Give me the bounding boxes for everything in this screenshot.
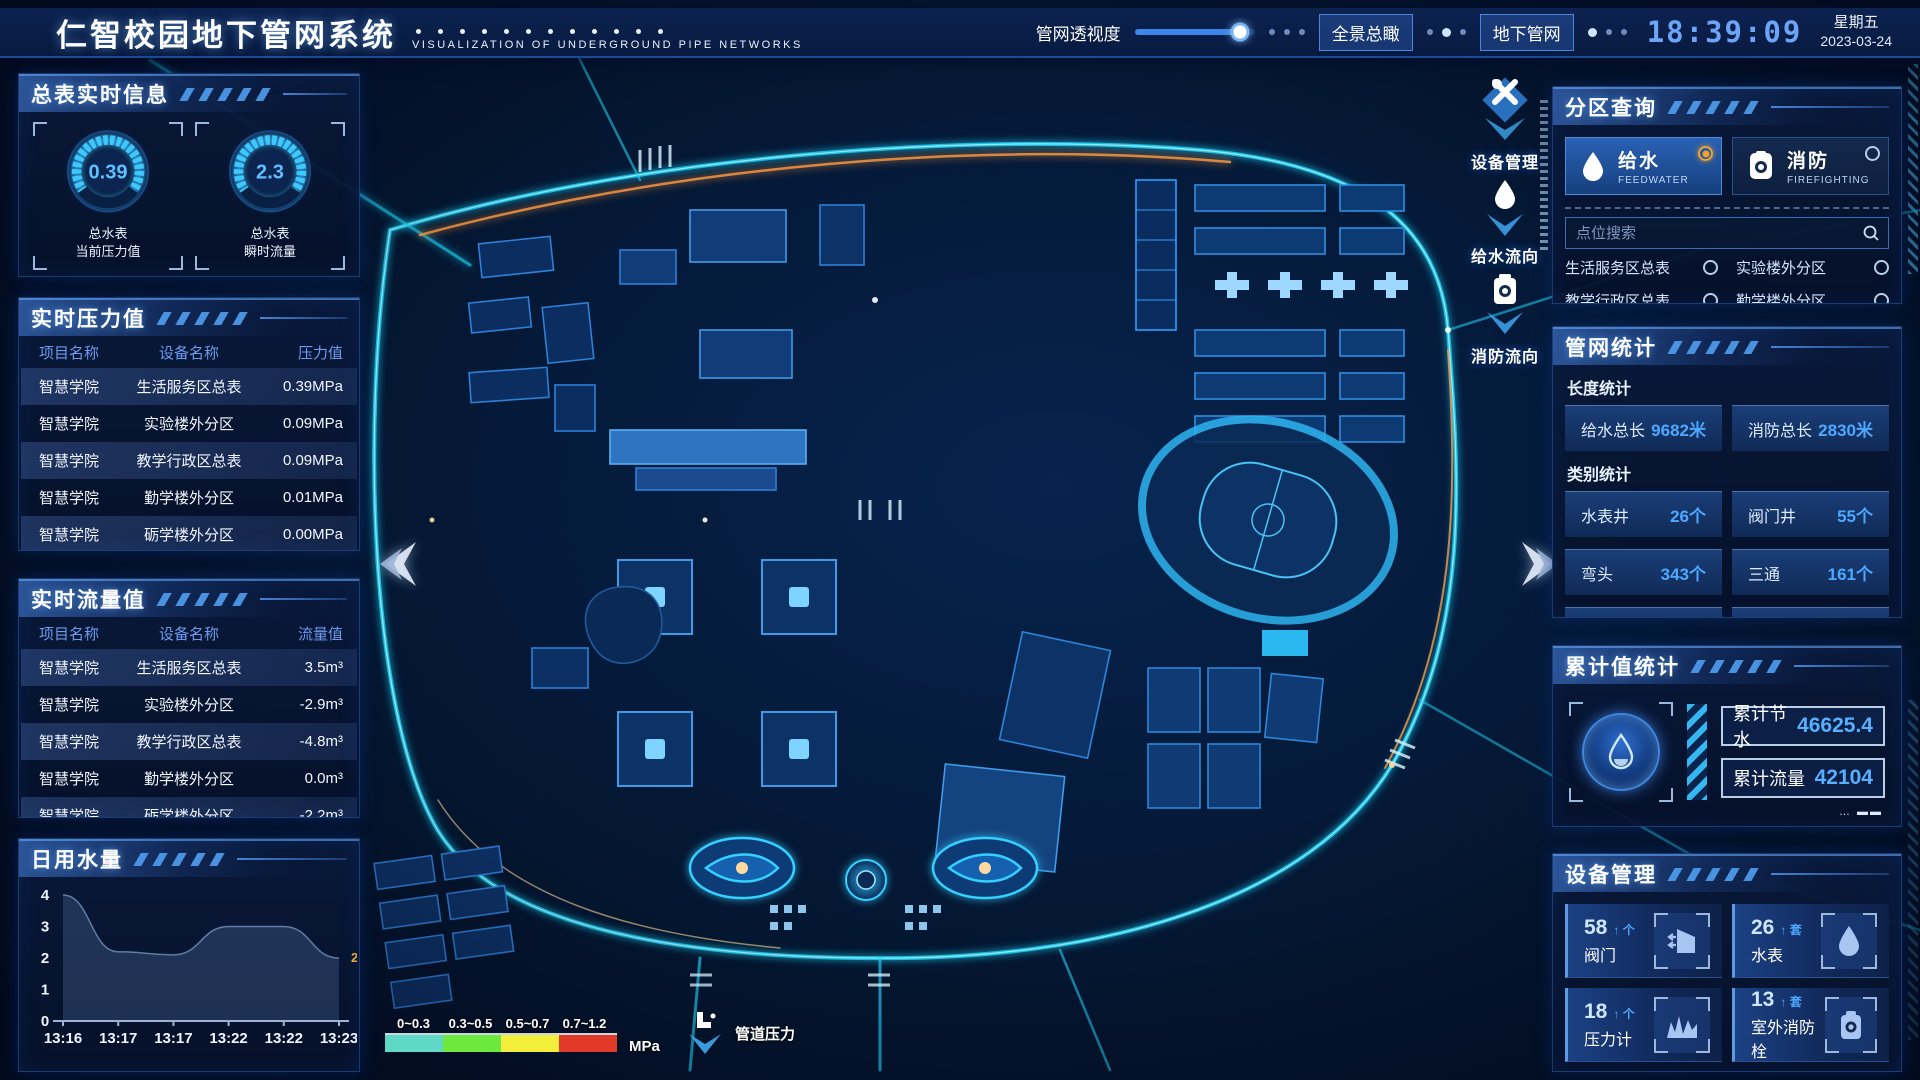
cumulative-saved-row: 累计节水46625.4 — [1721, 706, 1885, 746]
pipe-pressure-label: 管道压力 — [735, 1023, 795, 1044]
table-row[interactable]: 智慧学院生活服务区总表3.5m³ — [21, 649, 357, 686]
up-arrow-icon: ↑ 个 — [1613, 1007, 1634, 1021]
pressure-table-header: 项目名称 设备名称 压力值 — [21, 336, 357, 368]
svg-text:3: 3 — [41, 919, 49, 936]
tab-radio[interactable] — [1865, 146, 1880, 161]
title-line-decoration — [1771, 106, 1889, 108]
item-radio[interactable] — [1874, 293, 1889, 304]
title-line-decoration — [260, 598, 347, 600]
flow-table: 项目名称 设备名称 流量值 智慧学院生活服务区总表3.5m³ 智慧学院实验楼外分… — [19, 617, 359, 818]
transparency-slider-fill — [1135, 29, 1241, 35]
table-row[interactable]: 智慧学院教学行政区总表0.09MPa — [21, 442, 357, 479]
gauge-pressure-card: 0.39 总水表 当前压力值 — [33, 122, 183, 270]
svg-text:0: 0 — [41, 1013, 49, 1030]
pipe-statistics-panel: 管网统计 长度统计 给水总长9682米 消防总长2830米 类别统计 水表井26… — [1552, 326, 1902, 618]
dots-decoration — [1427, 28, 1466, 37]
slashes-decoration — [1667, 341, 1761, 354]
tab-firefighting[interactable]: 消防FIREFIGHTING — [1732, 137, 1889, 195]
search-icon[interactable] — [1862, 224, 1880, 242]
realtime-pressure-panel: 实时压力值 项目名称 设备名称 压力值 智慧学院生活服务区总表0.39MPa 智… — [18, 297, 360, 551]
list-item[interactable]: 勤学楼外分区 — [1736, 290, 1889, 304]
pressure-table: 项目名称 设备名称 压力值 智慧学院生活服务区总表0.39MPa 智慧学院实验楼… — [19, 336, 359, 551]
stat-chip-fire-length: 消防总长2830米 — [1732, 405, 1889, 451]
svg-text:13:17: 13:17 — [99, 1030, 137, 1047]
stat-chip-feedwater-length: 给水总长9682米 — [1565, 405, 1722, 451]
stat-chip-meter-well: 水表井26个 — [1565, 491, 1722, 537]
pipe-pressure-icon — [685, 1010, 725, 1056]
app-subtitle: VISUALIZATION OF UNDERGROUND PIPE NETWOR… — [412, 39, 803, 51]
fire-hydrant-icon — [1469, 272, 1541, 338]
up-arrow-icon: ↑ 套 — [1780, 923, 1801, 937]
title-line-decoration — [1771, 346, 1889, 348]
map-tool-fire-flow[interactable]: 消防流向 — [1463, 272, 1547, 367]
svg-text:13:22: 13:22 — [209, 1030, 247, 1047]
title-line-decoration — [237, 858, 347, 860]
slashes-decoration — [1667, 868, 1761, 881]
map-pan-left-arrow[interactable] — [378, 540, 418, 588]
svg-text:0.39: 0.39 — [88, 161, 127, 183]
gauge-flow-card: 2.3 总水表 瞬时流量 — [195, 122, 345, 270]
legend-color-bar — [385, 1035, 617, 1052]
panel-title: 总表实时信息 — [31, 79, 169, 109]
fire-hydrant-icon — [1825, 997, 1877, 1053]
water-drop-icon — [1582, 713, 1660, 791]
cumulative-stats-panel: 累计值统计 累计节水46625.4 累计流量42104 … ▬▬ — [1552, 645, 1902, 827]
panel-title: 累计值统计 — [1565, 651, 1680, 681]
svg-text:13:23: 13:23 — [320, 1030, 357, 1047]
point-search-box[interactable] — [1565, 217, 1889, 249]
pipe-pressure-legend: 0~0.30.3~0.5 0.5~0.70.7~1.2 MPa 管道压力 — [385, 1016, 785, 1052]
table-row[interactable]: 智慧学院生活服务区总表0.39MPa — [21, 368, 357, 405]
dashed-divider — [1565, 207, 1889, 209]
svg-text:13:22: 13:22 — [265, 1030, 303, 1047]
map-tool-feedwater-flow[interactable]: 给水流向 — [1463, 178, 1547, 267]
search-input[interactable] — [1576, 225, 1862, 242]
tab-radio-selected[interactable] — [1698, 146, 1713, 161]
fire-hydrant-icon — [1747, 150, 1775, 182]
water-drop-icon — [1580, 150, 1606, 182]
panel-title: 实时压力值 — [31, 303, 146, 333]
device-card-water-meters[interactable]: 26↑ 套 水表 — [1732, 904, 1889, 978]
table-row[interactable]: 智慧学院实验楼外分区0.09MPa — [21, 405, 357, 442]
cumulative-flow-row: 累计流量42104 — [1721, 758, 1885, 798]
header-bar: 仁智校园地下管网系统 VISUALIZATION OF UNDERGROUND … — [0, 8, 1920, 58]
slashes-decoration — [179, 88, 273, 101]
slashes-decoration — [133, 853, 227, 866]
zone-list: 生活服务区总表 实验楼外分区 教学行政区总表 勤学楼外分区 砺学楼外分区 宿舍区… — [1553, 249, 1901, 304]
table-row[interactable]: 智慧学院砺学楼外分区0.00MPa — [21, 516, 357, 551]
table-row[interactable]: 智慧学院勤学楼外分区0.01MPa — [21, 479, 357, 516]
dots-decoration — [1269, 29, 1305, 35]
title-line-decoration — [1794, 665, 1889, 667]
valve-icon — [1654, 913, 1710, 969]
transparency-slider[interactable] — [1135, 29, 1255, 35]
panel-title: 设备管理 — [1565, 859, 1657, 889]
slashes-decoration — [156, 312, 250, 325]
tab-feedwater[interactable]: 给水FEEDWATER — [1565, 137, 1722, 195]
slashes-decoration — [156, 593, 250, 606]
svg-text:2.3: 2.3 — [256, 161, 284, 183]
table-row[interactable]: 智慧学院砺学楼外分区-2.2m³ — [21, 797, 357, 818]
svg-text:1: 1 — [41, 982, 49, 999]
stat-chip-elbow: 弯头343个 — [1565, 549, 1722, 595]
legend-unit: MPa — [629, 1038, 660, 1055]
weekday: 星期五 — [1820, 14, 1892, 33]
daily-water-chart: 0123413:1613:1713:1713:2213:2213:232 — [21, 881, 357, 1063]
hatch-bar-decoration — [1687, 704, 1707, 800]
date-block: 星期五 2023-03-24 — [1820, 14, 1892, 50]
stat-chip-tee: 三通161个 — [1732, 549, 1889, 595]
list-item[interactable]: 实验楼外分区 — [1736, 257, 1889, 278]
underground-pipes-button[interactable]: 地下管网 — [1480, 14, 1574, 51]
gauge-label: 总水表 瞬时流量 — [195, 225, 345, 260]
realtime-flow-panel: 实时流量值 项目名称 设备名称 流量值 智慧学院生活服务区总表3.5m³ 智慧学… — [18, 578, 360, 818]
table-row[interactable]: 智慧学院实验楼外分区-2.9m³ — [21, 686, 357, 723]
up-arrow-icon: ↑ 套 — [1780, 995, 1801, 1009]
svg-text:2: 2 — [41, 950, 49, 967]
table-row[interactable]: 智慧学院教学行政区总表-4.8m³ — [21, 723, 357, 760]
dashes-decoration: … ▬▬ — [1553, 802, 1901, 818]
slashes-decoration — [1667, 101, 1761, 114]
panel-title: 分区查询 — [1565, 92, 1657, 122]
meter-realtime-panel: 总表实时信息 0.39 总水表 当前压力值 — [18, 73, 360, 277]
svg-text:13:16: 13:16 — [44, 1030, 82, 1047]
panel-title: 日用水量 — [31, 844, 123, 874]
slashes-decoration — [1690, 660, 1784, 673]
tools-wrench-icon — [1469, 66, 1541, 144]
list-item[interactable]: 生活服务区总表 — [1565, 257, 1718, 278]
length-stats-label: 长度统计 — [1553, 365, 1901, 405]
zone-query-panel: 分区查询 给水FEEDWATER 消防FIREFIGHTING — [1552, 86, 1902, 304]
stat-chip-valve-well: 阀门井55个 — [1732, 491, 1889, 537]
water-drop-icon — [1469, 178, 1541, 238]
date: 2023-03-24 — [1820, 33, 1892, 51]
table-row[interactable]: 智慧学院勤学楼外分区0.0m³ — [21, 760, 357, 797]
stat-chip-partial — [1732, 607, 1889, 618]
title-line-decoration — [283, 93, 347, 95]
svg-text:4: 4 — [41, 887, 50, 904]
title-line-decoration — [1771, 873, 1889, 875]
pressure-gauge-icon — [1654, 997, 1710, 1053]
title-line-decoration — [260, 317, 347, 319]
flow-table-header: 项目名称 设备名称 流量值 — [21, 617, 357, 649]
clock: 18:39:09 — [1647, 15, 1803, 49]
device-management-panel: 设备管理 58↑ 个 阀门 26↑ 套 水表 18↑ 个 — [1552, 853, 1902, 1072]
item-radio[interactable] — [1703, 293, 1718, 304]
stat-chip-partial — [1565, 607, 1722, 618]
app-title: 仁智校园地下管网系统 — [56, 10, 396, 55]
device-card-pressure-gauges[interactable]: 18↑ 个 压力计 — [1565, 988, 1722, 1062]
title-dots-decoration — [412, 29, 803, 34]
dashboard: 仁智校园地下管网系统 VISUALIZATION OF UNDERGROUND … — [0, 0, 1920, 1080]
flow-gauge: 2.3 — [216, 126, 324, 222]
dots-decoration — [1588, 28, 1627, 37]
transparency-slider-label: 管网透视度 — [1036, 20, 1121, 45]
transparency-slider-thumb[interactable] — [1231, 23, 1250, 42]
svg-text:13:17: 13:17 — [154, 1030, 192, 1047]
device-card-valves[interactable]: 58↑ 个 阀门 — [1565, 904, 1722, 978]
list-item[interactable]: 教学行政区总表 — [1565, 290, 1718, 304]
item-radio[interactable] — [1703, 260, 1718, 275]
panel-title: 管网统计 — [1565, 332, 1657, 362]
pressure-gauge: 0.39 — [54, 126, 162, 222]
water-drop-icon — [1821, 913, 1877, 969]
cumulative-water-icon-box — [1569, 702, 1673, 802]
up-arrow-icon: ↑ 个 — [1613, 923, 1634, 937]
daily-water-panel: 日用水量 0123413:1613:1713:1713:2213:2213:23… — [18, 838, 360, 1072]
svg-text:2: 2 — [351, 950, 357, 965]
category-stats-label: 类别统计 — [1553, 451, 1901, 491]
item-radio[interactable] — [1874, 260, 1889, 275]
device-card-fire-hydrants[interactable]: 13↑ 套 室外消防栓 — [1732, 988, 1889, 1062]
overview-button[interactable]: 全景总瞰 — [1319, 14, 1413, 51]
gauge-label: 总水表 当前压力值 — [33, 225, 183, 260]
panel-title: 实时流量值 — [31, 584, 146, 614]
map-tool-device-management[interactable]: 设备管理 — [1463, 66, 1547, 173]
